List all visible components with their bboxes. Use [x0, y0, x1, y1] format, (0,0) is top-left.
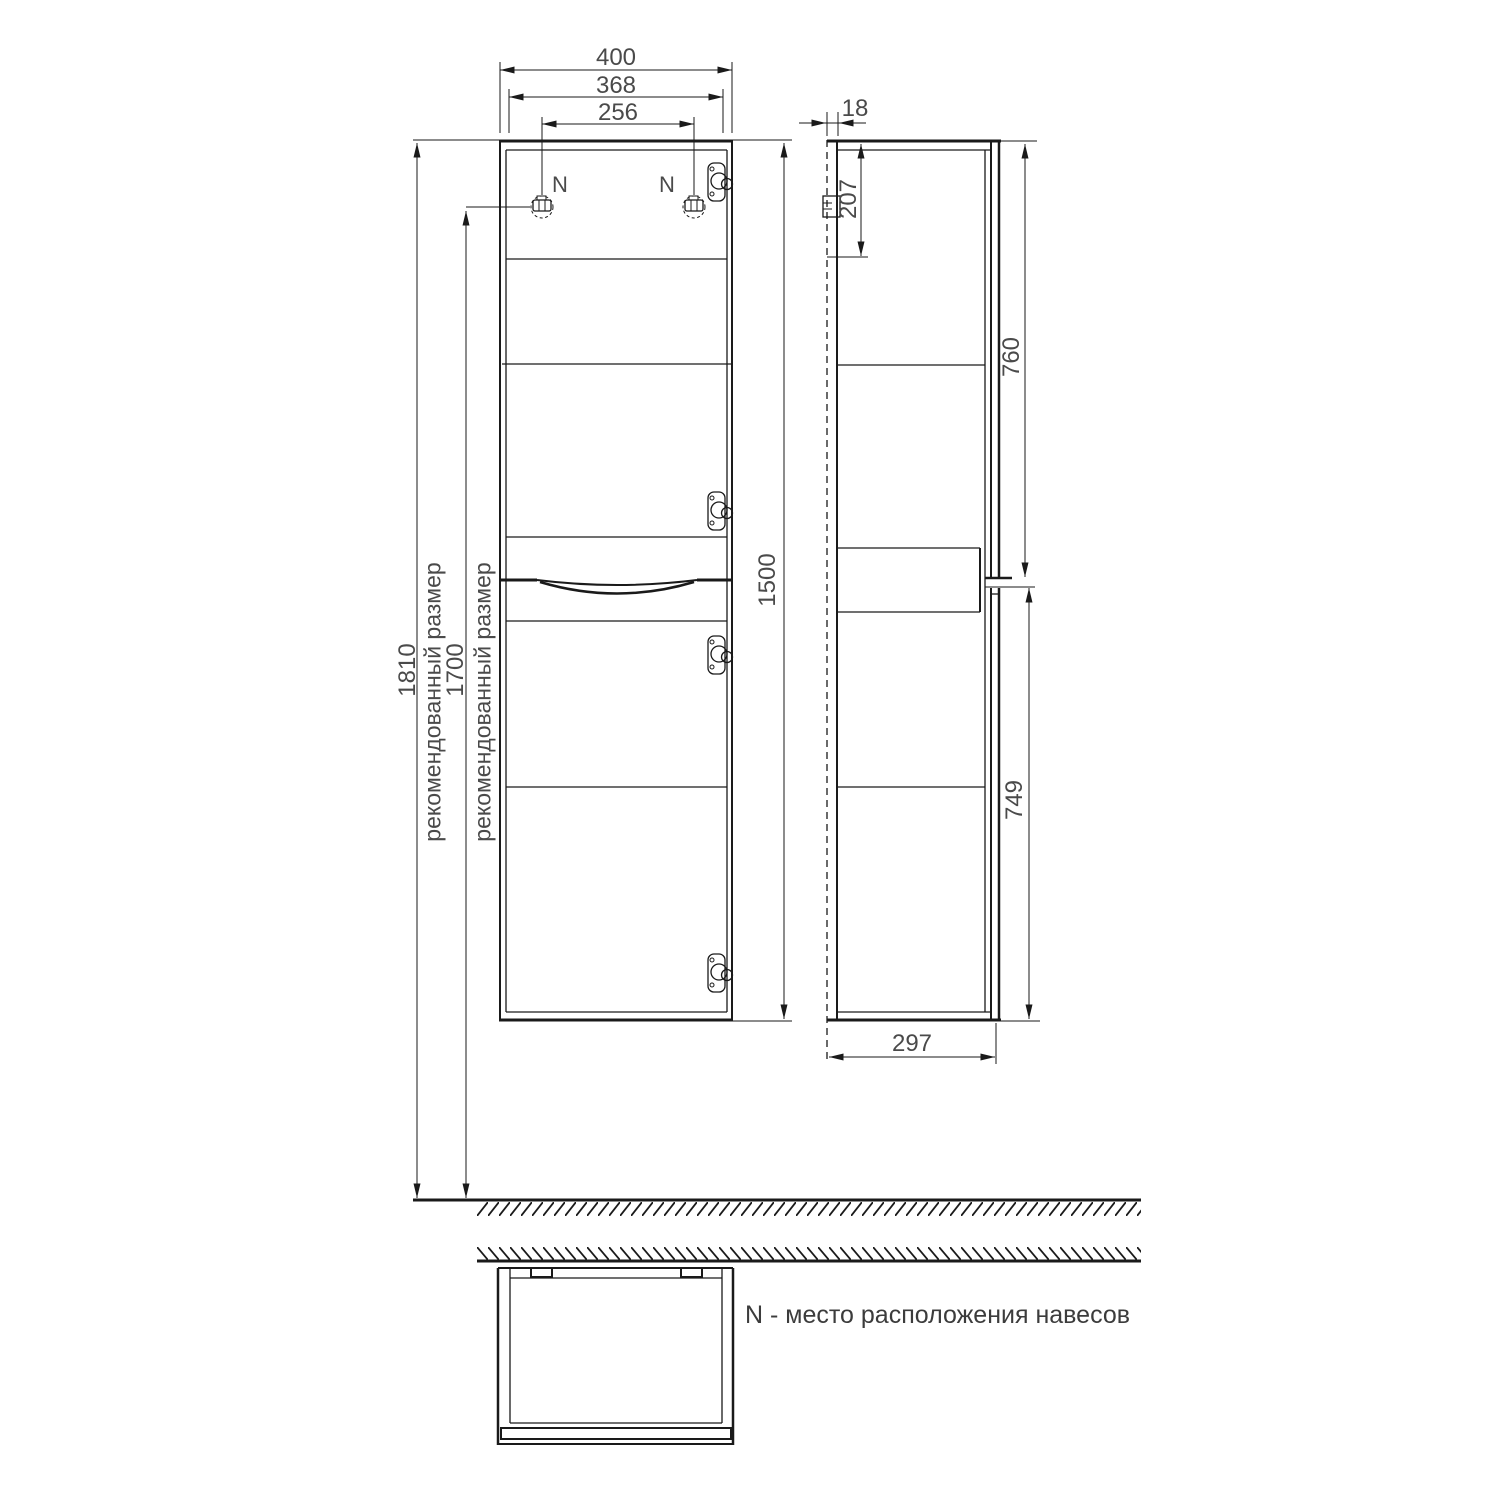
drawing-canvas	[0, 0, 1500, 1500]
hinge-icon	[708, 492, 733, 530]
mount-label-right: N	[659, 174, 675, 196]
mount-bracket-plan-icon	[531, 1268, 552, 1277]
floor-hatch	[477, 1202, 1141, 1216]
floor-line	[413, 1200, 1141, 1216]
legend-mount-note: N - место расположения навесов	[745, 1303, 1130, 1328]
recommended-label-1700: рекомендованный размер	[472, 562, 495, 841]
mount-point-icon	[683, 196, 705, 218]
dim-door-thickness: 18	[842, 97, 869, 121]
hinge-icon	[708, 636, 733, 674]
dim-height-overall: 1500	[756, 553, 780, 606]
wall-hatch	[477, 1247, 1141, 1260]
cabinet-technical-drawing: 400 368 256 N N 18 207 760 1500 749 297 …	[0, 0, 1500, 1500]
top-view	[477, 1247, 1141, 1445]
front-view	[499, 140, 733, 1021]
dim-mount-spacing: 256	[598, 101, 638, 125]
door-slab-plan	[501, 1428, 731, 1439]
dim-upper-section: 760	[1000, 337, 1024, 377]
mount-bracket-plan-icon	[681, 1268, 702, 1277]
dim-recommended-1810: 1810	[396, 643, 420, 696]
mount-label-left: N	[552, 174, 568, 196]
dim-width-overall: 400	[596, 46, 636, 70]
hinge-icon	[708, 954, 733, 992]
dim-width-inner: 368	[596, 74, 636, 98]
dim-mount-offset: 207	[837, 179, 861, 219]
dim-lower-section: 749	[1003, 780, 1027, 820]
side-dimensions	[799, 112, 1040, 1064]
wave-handle	[500, 580, 732, 594]
recommended-label-1810: рекомендованный размер	[422, 562, 445, 841]
hinge-icon	[708, 163, 733, 201]
mount-point-icon	[531, 196, 553, 218]
side-view	[823, 140, 1035, 1063]
dim-depth: 297	[892, 1032, 932, 1056]
dim-recommended-1700: 1700	[444, 643, 468, 696]
